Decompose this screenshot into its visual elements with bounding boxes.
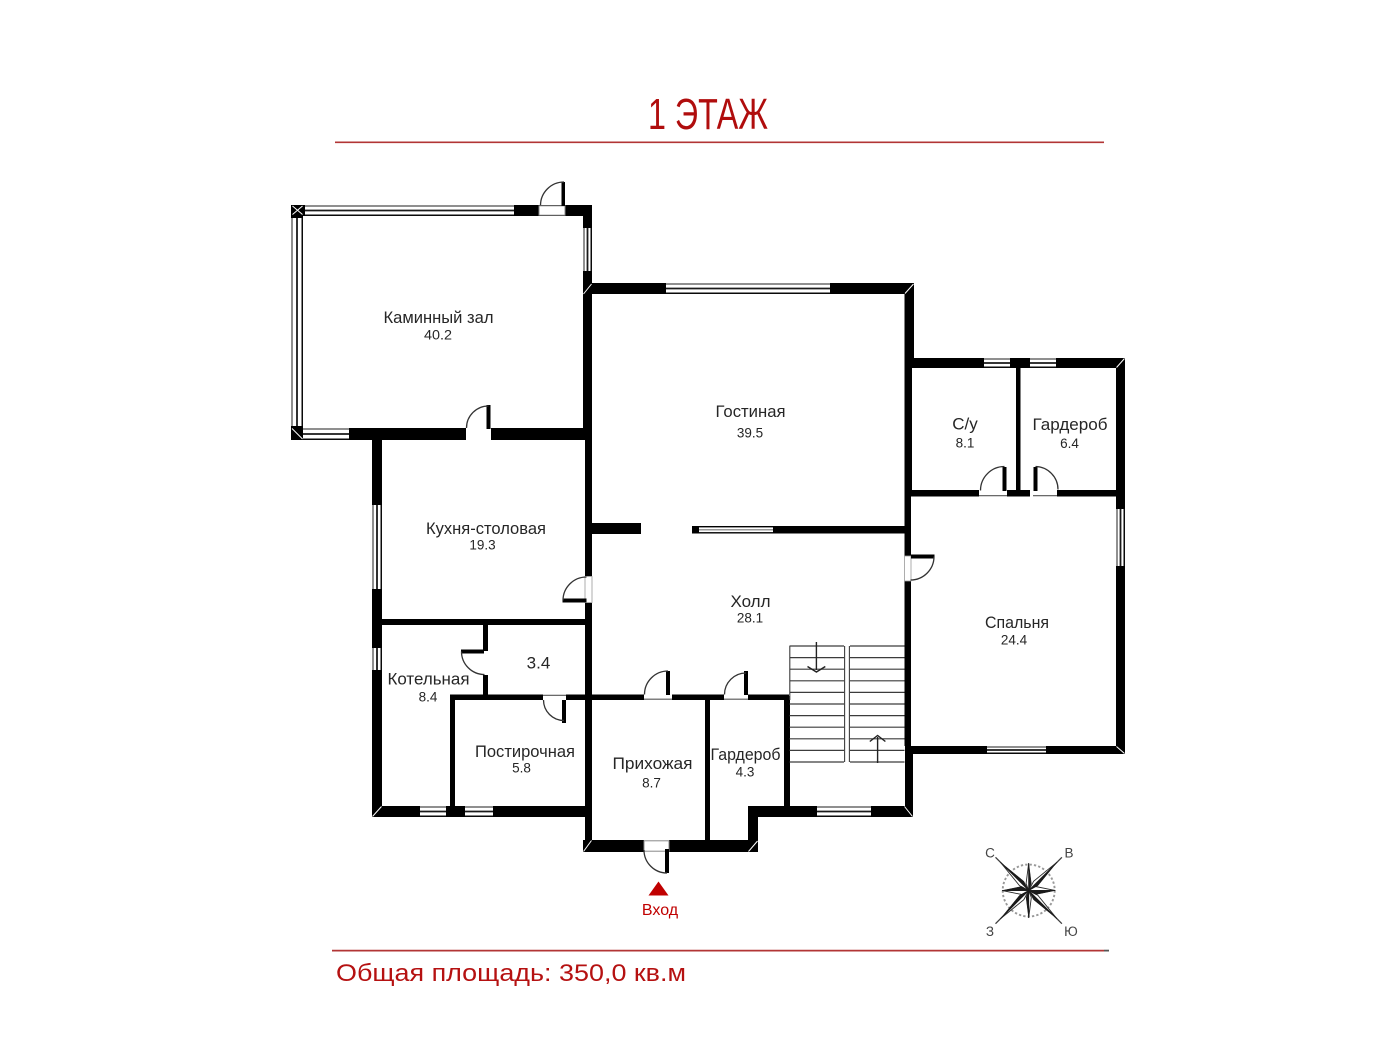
svg-text:Общая площадь: 350,0 кв.м: Общая площадь: 350,0 кв.м: [336, 960, 686, 987]
svg-text:В: В: [1064, 846, 1073, 861]
svg-text:8.7: 8.7: [642, 776, 661, 791]
svg-text:Ю: Ю: [1064, 924, 1078, 939]
svg-text:8.4: 8.4: [419, 690, 438, 705]
svg-text:1 ЭТАЖ: 1 ЭТАЖ: [648, 90, 768, 139]
svg-text:Кухня-столовая: Кухня-столовая: [426, 519, 546, 538]
svg-text:Холл: Холл: [730, 592, 770, 611]
svg-text:С/у: С/у: [952, 415, 978, 434]
svg-text:Спальня: Спальня: [985, 613, 1049, 632]
svg-text:19.3: 19.3: [469, 538, 495, 553]
svg-text:Гостиная: Гостиная: [716, 402, 786, 421]
svg-text:5.8: 5.8: [512, 761, 531, 776]
svg-text:39.5: 39.5: [737, 426, 763, 441]
svg-text:8.1: 8.1: [956, 436, 975, 451]
svg-text:Гардероб: Гардероб: [1033, 415, 1108, 434]
svg-text:6.4: 6.4: [1060, 436, 1079, 451]
svg-text:28.1: 28.1: [737, 611, 763, 626]
svg-text:Прихожая: Прихожая: [613, 754, 693, 773]
svg-text:Котельная: Котельная: [388, 670, 470, 689]
svg-text:Каминный зал: Каминный зал: [384, 308, 494, 327]
svg-text:Вход: Вход: [642, 902, 679, 919]
svg-text:40.2: 40.2: [424, 328, 452, 343]
svg-text:4.3: 4.3: [736, 765, 755, 780]
svg-text:С: С: [985, 846, 995, 861]
svg-text:24.4: 24.4: [1001, 633, 1028, 648]
svg-text:З: З: [986, 924, 994, 939]
svg-text:Гардероб: Гардероб: [711, 745, 781, 764]
svg-text:Постирочная: Постирочная: [475, 742, 575, 761]
svg-text:3.4: 3.4: [527, 654, 551, 673]
